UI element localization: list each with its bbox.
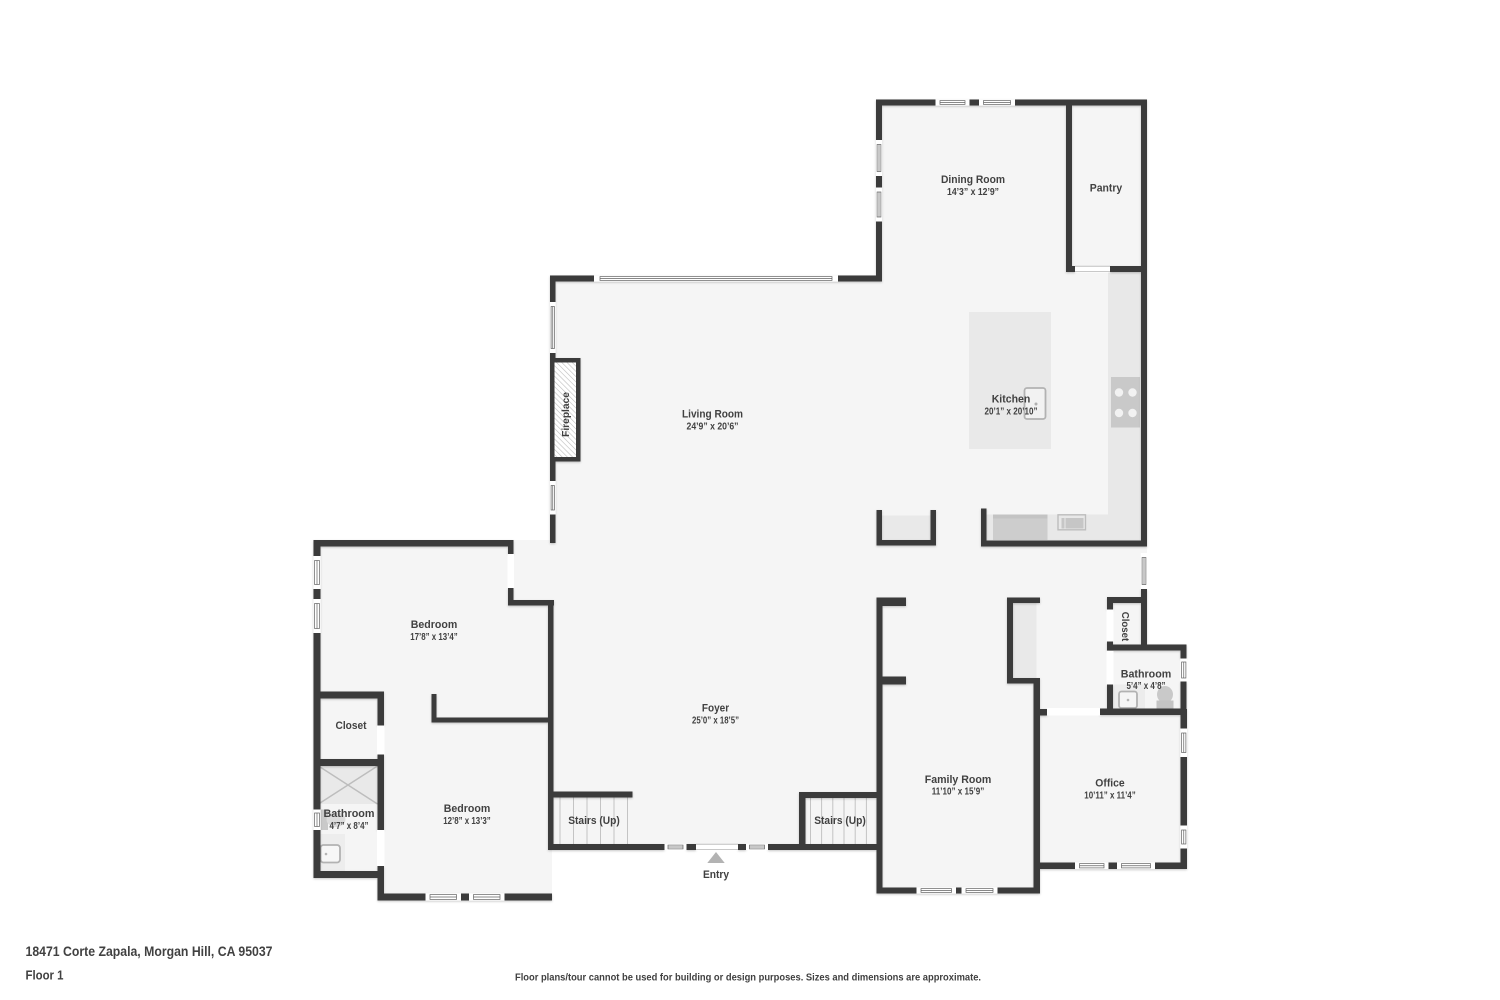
svg-text:Closet: Closet bbox=[1119, 612, 1131, 642]
svg-text:25’0” x 18’5”: 25’0” x 18’5” bbox=[692, 716, 739, 727]
svg-text:Living Room: Living Room bbox=[682, 409, 743, 421]
svg-text:24’9” x 20’6”: 24’9” x 20’6” bbox=[687, 422, 739, 433]
svg-text:Stairs (Up): Stairs (Up) bbox=[814, 815, 866, 827]
svg-text:Entry: Entry bbox=[703, 869, 730, 881]
svg-text:4’7” x 8’4”: 4’7” x 8’4” bbox=[330, 821, 369, 832]
svg-text:Stairs (Up): Stairs (Up) bbox=[568, 815, 620, 827]
svg-text:12’8” x 13’3”: 12’8” x 13’3” bbox=[443, 816, 491, 827]
svg-text:Foyer: Foyer bbox=[702, 703, 730, 715]
svg-text:Dining Room: Dining Room bbox=[941, 174, 1005, 186]
svg-text:Office: Office bbox=[1095, 778, 1124, 790]
svg-text:Family Room: Family Room bbox=[925, 774, 992, 786]
svg-text:11’10” x 15’9”: 11’10” x 15’9” bbox=[932, 787, 985, 798]
svg-text:Floor 1: Floor 1 bbox=[26, 968, 64, 983]
svg-text:18471 Corte Zapala, Morgan Hil: 18471 Corte Zapala, Morgan Hill, CA 9503… bbox=[26, 943, 273, 959]
svg-text:Kitchen: Kitchen bbox=[992, 394, 1031, 406]
svg-text:17’8” x 13’4”: 17’8” x 13’4” bbox=[410, 632, 458, 643]
svg-text:Fireplace: Fireplace bbox=[560, 392, 572, 437]
svg-text:14’3” x 12’9”: 14’3” x 12’9” bbox=[947, 187, 999, 198]
svg-text:Bedroom: Bedroom bbox=[411, 619, 458, 631]
svg-text:Closet: Closet bbox=[336, 720, 367, 732]
svg-text:5’4” x 4’8”: 5’4” x 4’8” bbox=[1127, 681, 1166, 692]
svg-text:Pantry: Pantry bbox=[1090, 183, 1123, 195]
svg-text:Bathroom: Bathroom bbox=[324, 808, 375, 820]
svg-text:20’1” x 20’10”: 20’1” x 20’10” bbox=[985, 407, 1038, 418]
svg-text:Floor plans/tour cannot be use: Floor plans/tour cannot be used for buil… bbox=[515, 972, 981, 984]
svg-text:Bedroom: Bedroom bbox=[444, 803, 491, 815]
svg-text:10’11” x 11’4”: 10’11” x 11’4” bbox=[1084, 791, 1136, 802]
svg-text:Bathroom: Bathroom bbox=[1121, 669, 1172, 681]
